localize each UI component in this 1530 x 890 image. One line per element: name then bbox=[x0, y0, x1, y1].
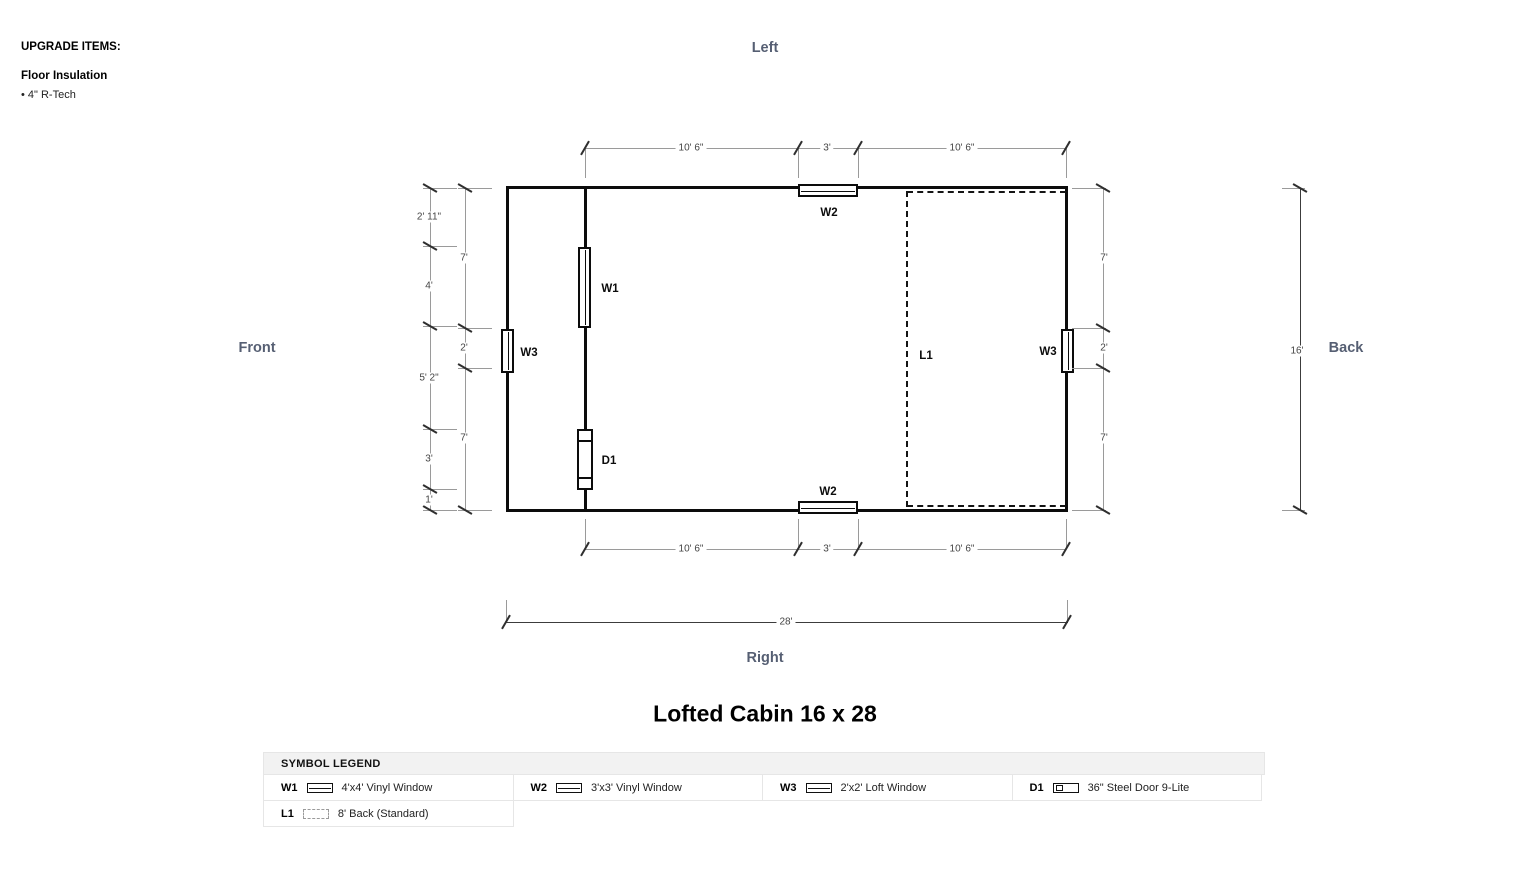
legend-code: L1 bbox=[281, 808, 294, 820]
door-d1-icon bbox=[577, 429, 593, 490]
dimension-label: 10' 6" bbox=[676, 544, 707, 555]
dimension-label: 7' bbox=[1097, 253, 1110, 264]
extension-line bbox=[858, 148, 859, 178]
upgrade-item-title: Floor Insulation bbox=[21, 70, 107, 82]
symbol-label-w1: W1 bbox=[601, 283, 618, 295]
dimension-label-height-total: 16' bbox=[1287, 346, 1306, 357]
symbol-legend-table: SYMBOL LEGEND W1 4'x4' Vinyl Window W2 3… bbox=[263, 752, 1265, 827]
loft-l1-dashed-bottom bbox=[907, 505, 1066, 507]
dimension-label: 2' bbox=[457, 343, 470, 354]
door-symbol-icon bbox=[1053, 783, 1079, 793]
window-w2-top-icon bbox=[798, 184, 858, 197]
legend-cell-l1: L1 8' Back (Standard) bbox=[263, 801, 514, 827]
window-w2-bottom-icon bbox=[798, 501, 858, 514]
window-symbol-icon bbox=[307, 783, 333, 793]
orientation-label-right-side: Right bbox=[746, 650, 783, 666]
symbol-label-w2-top: W2 bbox=[820, 207, 837, 219]
dimension-label: 7' bbox=[1097, 433, 1110, 444]
dimension-label: 2' bbox=[1097, 343, 1110, 354]
dimension-label: 5' 2" bbox=[416, 373, 441, 384]
dimension-label: 3' bbox=[820, 143, 833, 154]
upgrade-item-detail: • 4" R-Tech bbox=[21, 89, 76, 101]
dimension-label-width-total: 28' bbox=[776, 617, 795, 628]
window-symbol-icon bbox=[556, 783, 582, 793]
dimension-label: 4' bbox=[422, 281, 435, 292]
symbol-label-w3-left: W3 bbox=[520, 347, 537, 359]
legend-label: 36" Steel Door 9-Lite bbox=[1088, 782, 1190, 794]
extension-line bbox=[1066, 148, 1067, 178]
legend-code: D1 bbox=[1030, 782, 1044, 794]
upgrade-items-heading: UPGRADE ITEMS: bbox=[21, 41, 121, 53]
page-title: Lofted Cabin 16 x 28 bbox=[653, 701, 877, 728]
legend-label: 8' Back (Standard) bbox=[338, 808, 429, 820]
loft-l1-dashed-top bbox=[907, 191, 1066, 193]
dimension-label: 3' bbox=[422, 454, 435, 465]
legend-row: W1 4'x4' Vinyl Window W2 3'x3' Vinyl Win… bbox=[263, 775, 1265, 801]
floor-plan-page: UPGRADE ITEMS: Floor Insulation • 4" R-T… bbox=[0, 0, 1530, 890]
legend-cell-d1: D1 36" Steel Door 9-Lite bbox=[1012, 775, 1263, 801]
legend-label: 3'x3' Vinyl Window bbox=[591, 782, 682, 794]
legend-code: W1 bbox=[281, 782, 298, 794]
legend-cell-w2: W2 3'x3' Vinyl Window bbox=[513, 775, 764, 801]
dimension-label: 10' 6" bbox=[676, 143, 707, 154]
legend-cell-w1: W1 4'x4' Vinyl Window bbox=[263, 775, 514, 801]
dimension-label: 10' 6" bbox=[947, 143, 978, 154]
dimension-label: 7' bbox=[457, 253, 470, 264]
symbol-label-w3-right: W3 bbox=[1039, 346, 1056, 358]
symbol-label-w2-bottom: W2 bbox=[819, 486, 836, 498]
extension-line bbox=[798, 148, 799, 178]
legend-row: L1 8' Back (Standard) bbox=[263, 801, 1265, 827]
symbol-label-d1: D1 bbox=[602, 455, 617, 467]
legend-code: W2 bbox=[531, 782, 548, 794]
window-symbol-icon bbox=[806, 783, 832, 793]
legend-code: W3 bbox=[780, 782, 797, 794]
legend-label: 2'x2' Loft Window bbox=[841, 782, 927, 794]
dimension-label: 1' bbox=[422, 495, 435, 506]
dimension-label: 10' 6" bbox=[947, 544, 978, 555]
orientation-label-front-side: Front bbox=[238, 340, 275, 356]
legend-label: 4'x4' Vinyl Window bbox=[342, 782, 433, 794]
dimension-label: 3' bbox=[820, 544, 833, 555]
dimension-label: 2' 11" bbox=[414, 212, 444, 223]
legend-cell-w3: W3 2'x2' Loft Window bbox=[762, 775, 1013, 801]
loft-l1-dashed-edge bbox=[906, 191, 908, 507]
window-w3-left-icon bbox=[501, 329, 514, 373]
window-w3-right-icon bbox=[1061, 329, 1074, 373]
loft-dashed-symbol-icon bbox=[303, 809, 329, 819]
dimension-label: 7' bbox=[457, 433, 470, 444]
symbol-label-l1: L1 bbox=[919, 350, 932, 362]
orientation-label-back-side: Back bbox=[1329, 340, 1364, 356]
extension-line bbox=[585, 148, 586, 178]
legend-header: SYMBOL LEGEND bbox=[263, 752, 1265, 775]
window-w1-icon bbox=[578, 247, 591, 328]
orientation-label-left-side: Left bbox=[752, 40, 779, 56]
